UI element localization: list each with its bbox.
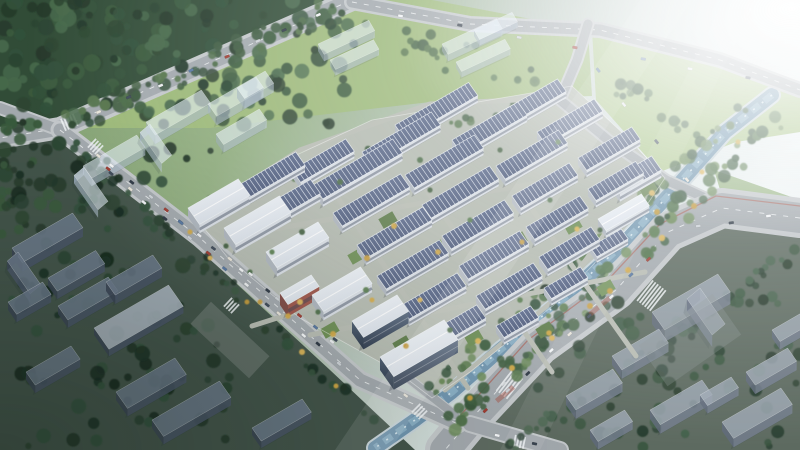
scene-svg <box>0 0 800 450</box>
atmosphere <box>0 0 800 450</box>
corner-vignette <box>0 0 800 450</box>
scene-layers <box>0 0 800 450</box>
aerial-rendering <box>0 0 800 450</box>
